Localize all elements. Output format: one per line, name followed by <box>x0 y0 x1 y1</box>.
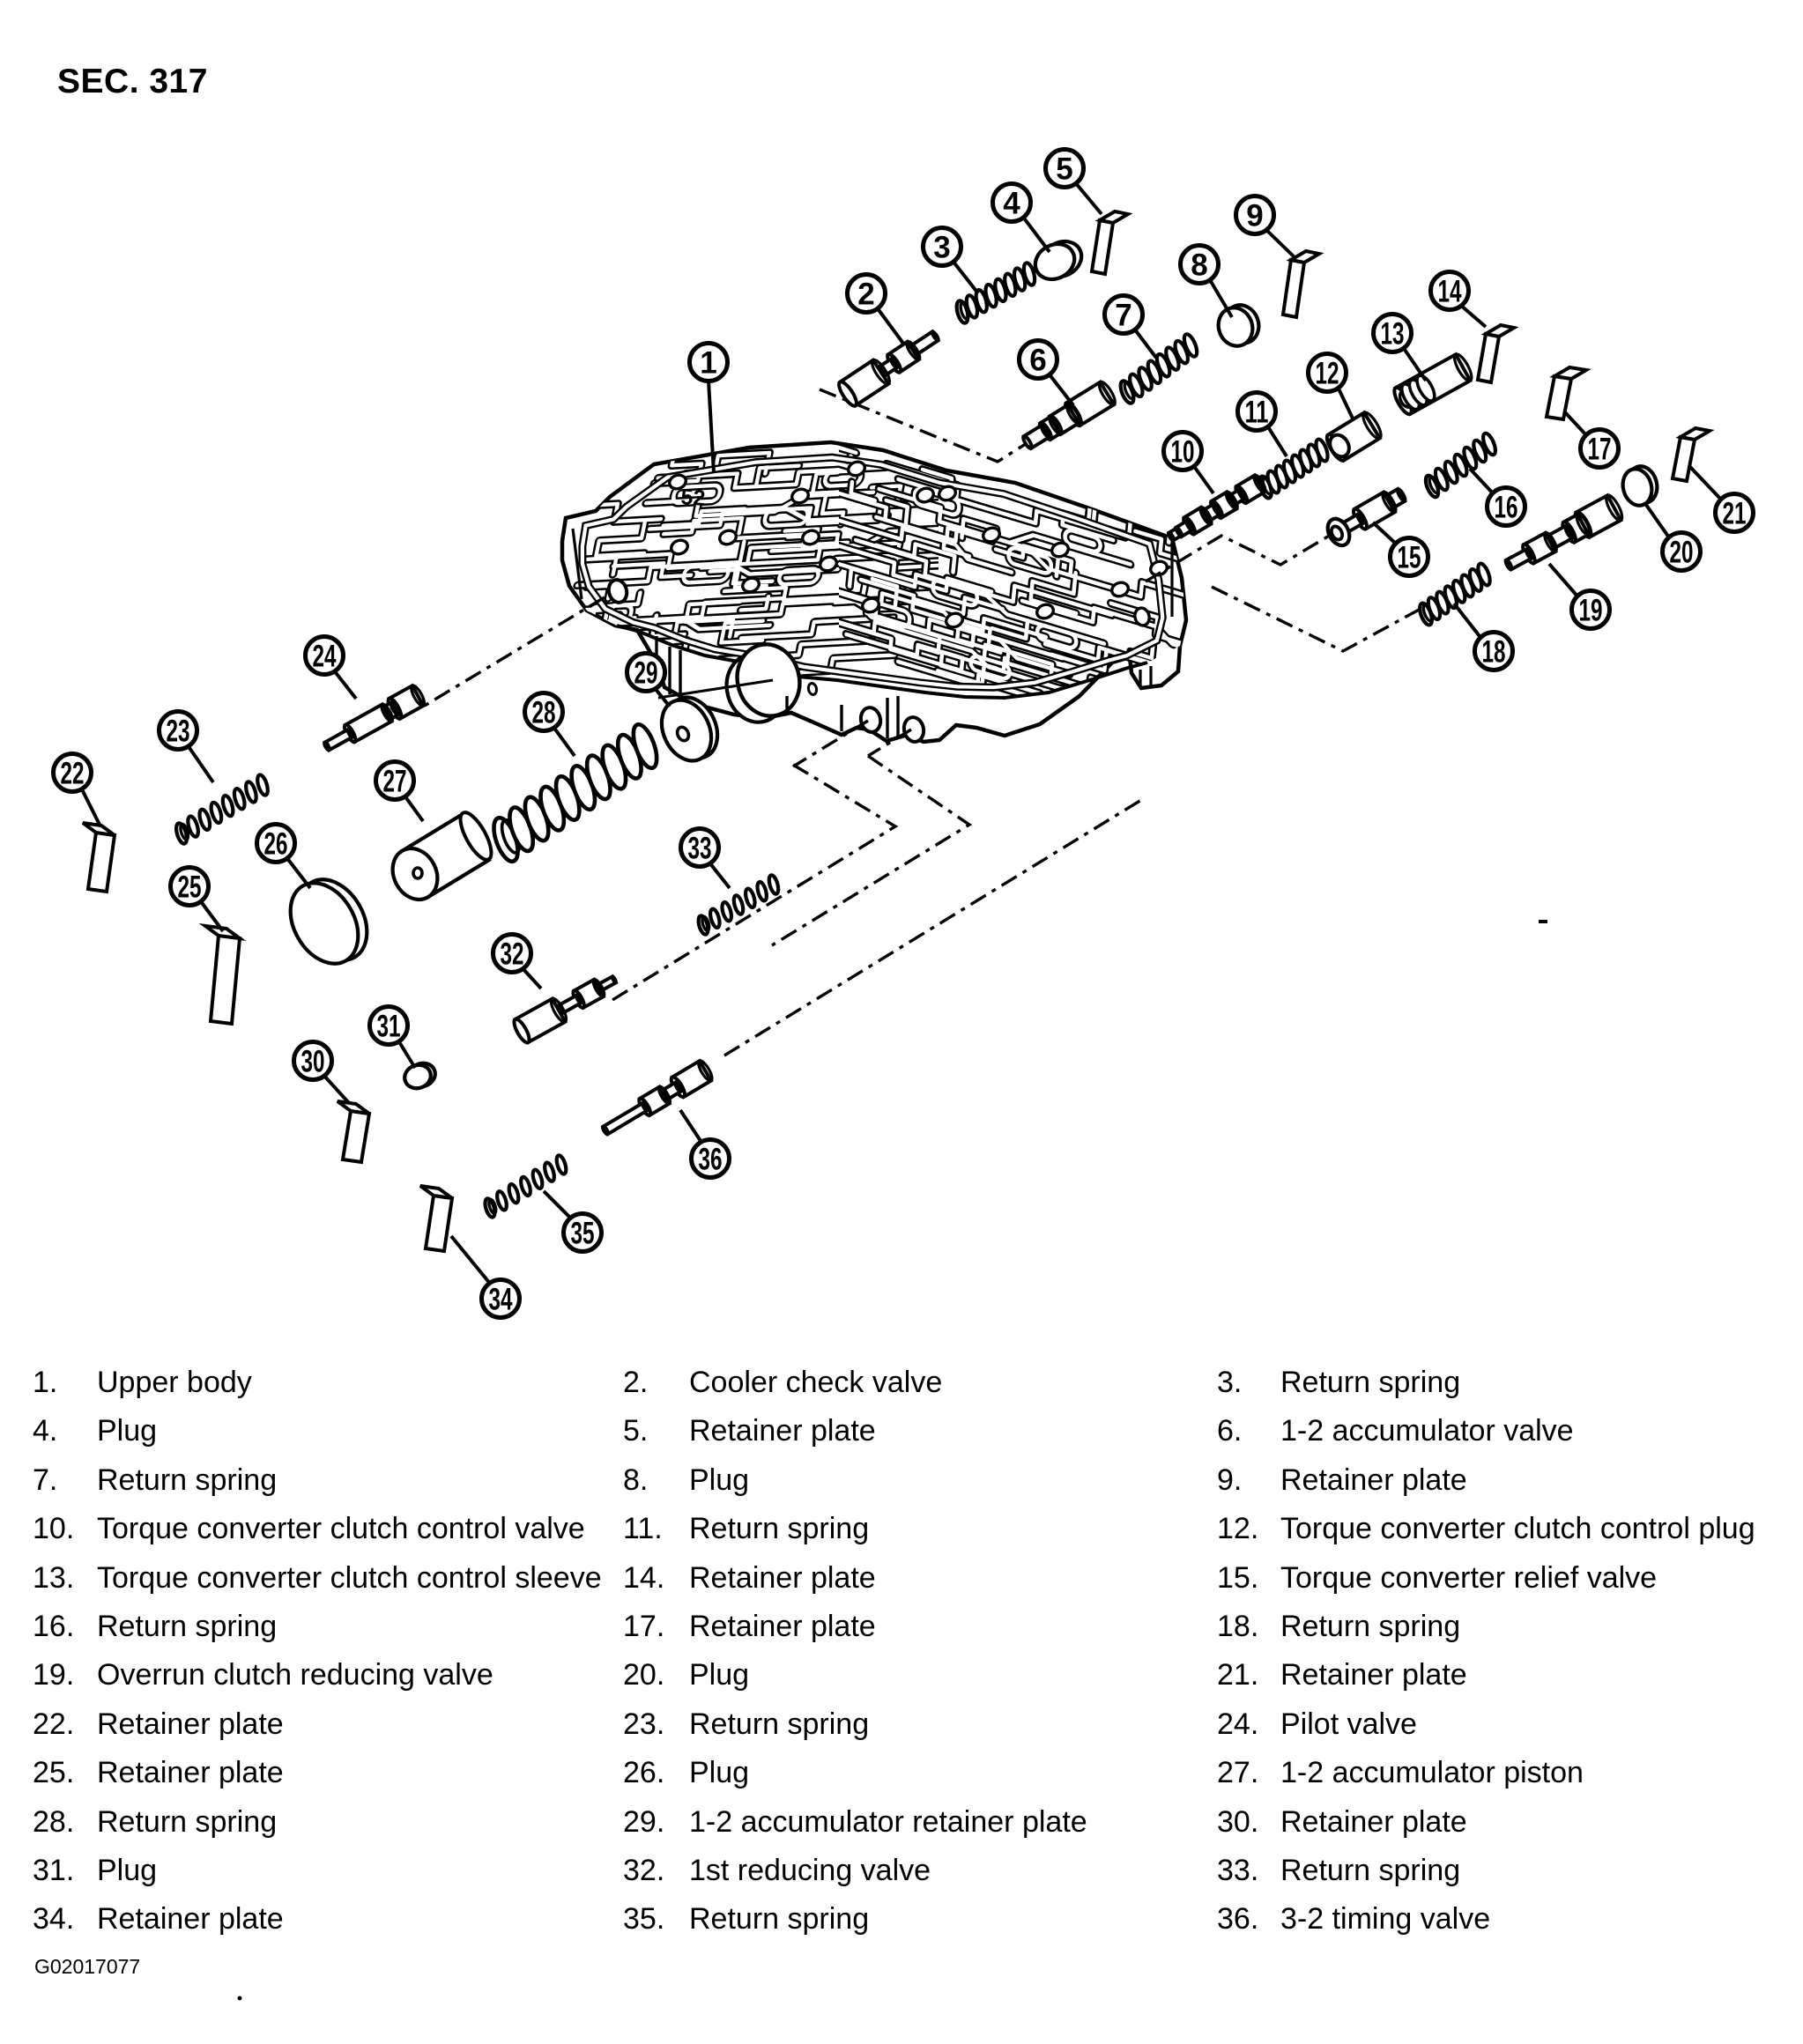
svg-text:12.: 12. <box>1217 1512 1258 1545</box>
svg-text:Upper body: Upper body <box>97 1366 252 1399</box>
svg-text:15.: 15. <box>1217 1561 1258 1595</box>
svg-text:Retainer plate: Retainer plate <box>1280 1805 1467 1839</box>
svg-text:Overrun clutch reducing valve: Overrun clutch reducing valve <box>97 1658 493 1692</box>
svg-text:33.: 33. <box>1217 1854 1258 1887</box>
svg-text:30.: 30. <box>1217 1805 1258 1839</box>
svg-text:Torque converter clutch contro: Torque converter clutch control valve <box>97 1512 585 1545</box>
svg-text:Retainer plate: Retainer plate <box>1280 1463 1467 1497</box>
svg-text:14: 14 <box>1438 275 1462 309</box>
svg-text:12: 12 <box>1316 357 1339 391</box>
svg-text:1.: 1. <box>33 1366 57 1399</box>
svg-text:28: 28 <box>532 696 556 730</box>
svg-text:Return spring: Return spring <box>97 1610 277 1643</box>
svg-text:25.: 25. <box>33 1756 74 1789</box>
svg-text:Return spring: Return spring <box>689 1512 869 1545</box>
svg-text:11: 11 <box>1245 396 1269 430</box>
svg-text:6.: 6. <box>1217 1414 1242 1448</box>
svg-text:32: 32 <box>501 937 524 972</box>
svg-text:20: 20 <box>1670 536 1694 570</box>
svg-text:22.: 22. <box>33 1707 74 1741</box>
svg-text:8: 8 <box>1191 248 1207 283</box>
svg-text:23.: 23. <box>623 1707 664 1741</box>
svg-text:Torque converter clutch contro: Torque converter clutch control sleeve <box>97 1561 602 1595</box>
svg-text:Plug: Plug <box>97 1414 157 1448</box>
svg-text:4: 4 <box>1003 187 1020 221</box>
svg-text:Plug: Plug <box>689 1463 749 1497</box>
svg-text:33: 33 <box>688 832 712 866</box>
svg-text:Return spring: Return spring <box>689 1707 869 1741</box>
svg-text:29: 29 <box>634 656 658 691</box>
svg-text:28.: 28. <box>33 1805 74 1839</box>
svg-text:5: 5 <box>1056 152 1072 187</box>
svg-text:25: 25 <box>178 870 202 905</box>
svg-text:35.: 35. <box>623 1902 664 1936</box>
svg-text:18: 18 <box>1482 635 1506 670</box>
svg-text:1-2 accumulator retainer plate: 1-2 accumulator retainer plate <box>689 1805 1087 1839</box>
svg-text:24.: 24. <box>1217 1707 1258 1741</box>
svg-text:3-2 timing valve: 3-2 timing valve <box>1280 1902 1490 1936</box>
svg-text:24: 24 <box>313 640 337 674</box>
svg-text:20.: 20. <box>623 1658 664 1692</box>
svg-text:1st reducing valve: 1st reducing valve <box>689 1854 931 1887</box>
svg-text:Retainer plate: Retainer plate <box>689 1561 876 1595</box>
svg-text:23: 23 <box>167 715 190 749</box>
svg-text:7.: 7. <box>33 1463 57 1497</box>
svg-text:6: 6 <box>1029 344 1046 378</box>
svg-text:26: 26 <box>264 827 288 862</box>
svg-text:4.: 4. <box>33 1414 57 1448</box>
svg-text:3.: 3. <box>1217 1366 1242 1399</box>
svg-text:26.: 26. <box>623 1756 664 1789</box>
svg-text:G02017077: G02017077 <box>34 1955 140 1978</box>
svg-text:Plug: Plug <box>689 1658 749 1692</box>
svg-text:Return spring: Return spring <box>1280 1366 1460 1399</box>
svg-text:3: 3 <box>933 231 950 265</box>
svg-text:21: 21 <box>1723 497 1747 531</box>
svg-text:2: 2 <box>857 278 874 312</box>
svg-text:5.: 5. <box>623 1414 648 1448</box>
svg-text:22: 22 <box>61 757 85 791</box>
svg-text:52: 52 <box>680 485 707 511</box>
svg-text:15: 15 <box>1398 541 1421 575</box>
svg-text:10: 10 <box>1171 435 1195 470</box>
svg-text:Retainer plate: Retainer plate <box>1280 1658 1467 1692</box>
svg-text:9: 9 <box>1246 199 1263 233</box>
svg-text:Torque converter clutch contro: Torque converter clutch control plug <box>1280 1512 1755 1545</box>
svg-text:Retainer plate: Retainer plate <box>97 1902 284 1936</box>
svg-text:10.: 10. <box>33 1512 74 1545</box>
svg-text:31: 31 <box>377 1010 401 1044</box>
svg-text:36: 36 <box>699 1143 723 1177</box>
svg-text:35: 35 <box>571 1217 595 1251</box>
svg-text:Cooler check valve: Cooler check valve <box>689 1366 942 1399</box>
svg-text:Retainer plate: Retainer plate <box>689 1610 876 1643</box>
svg-text:30: 30 <box>301 1045 325 1079</box>
svg-text:13.: 13. <box>33 1561 74 1595</box>
svg-text:Retainer plate: Retainer plate <box>97 1707 284 1741</box>
svg-text:Return spring: Return spring <box>97 1805 277 1839</box>
svg-text:32.: 32. <box>623 1854 664 1887</box>
svg-text:1-2 accumulator valve: 1-2 accumulator valve <box>1280 1414 1574 1448</box>
svg-text:Plug: Plug <box>97 1854 157 1887</box>
svg-text:13: 13 <box>1381 317 1405 352</box>
svg-text:11.: 11. <box>623 1512 663 1545</box>
svg-text:Plug: Plug <box>689 1756 749 1789</box>
svg-text:Return spring: Return spring <box>1280 1610 1460 1643</box>
svg-text:Return spring: Return spring <box>689 1902 869 1936</box>
svg-text:29.: 29. <box>623 1805 664 1839</box>
svg-text:Return spring: Return spring <box>1280 1854 1460 1887</box>
svg-text:31.: 31. <box>33 1854 74 1887</box>
svg-text:19: 19 <box>1579 594 1603 628</box>
svg-text:8.: 8. <box>623 1463 648 1497</box>
svg-text:7: 7 <box>1115 299 1132 333</box>
svg-text:16.: 16. <box>33 1610 74 1643</box>
svg-text:34.: 34. <box>33 1902 74 1936</box>
svg-text:2.: 2. <box>623 1366 648 1399</box>
svg-text:17.: 17. <box>623 1610 664 1643</box>
svg-text:SEC. 317: SEC. 317 <box>57 63 208 100</box>
svg-text:Retainer plate: Retainer plate <box>97 1756 284 1789</box>
svg-text:9.: 9. <box>1217 1463 1242 1497</box>
svg-text:18.: 18. <box>1217 1610 1258 1643</box>
svg-text:Return spring: Return spring <box>97 1463 277 1497</box>
svg-text:14.: 14. <box>623 1561 664 1595</box>
svg-text:27: 27 <box>383 765 407 799</box>
svg-text:Retainer plate: Retainer plate <box>689 1414 876 1448</box>
svg-text:17: 17 <box>1588 433 1612 467</box>
svg-text:34: 34 <box>489 1283 513 1317</box>
svg-text:27.: 27. <box>1217 1756 1258 1789</box>
svg-text:21.: 21. <box>1217 1658 1258 1692</box>
svg-text:Torque converter relief valve: Torque converter relief valve <box>1280 1561 1657 1595</box>
svg-text:16: 16 <box>1495 491 1518 525</box>
svg-text:36.: 36. <box>1217 1902 1258 1936</box>
svg-text:1: 1 <box>700 346 716 381</box>
svg-text:Pilot valve: Pilot valve <box>1280 1707 1417 1741</box>
svg-text:1-2 accumulator piston: 1-2 accumulator piston <box>1280 1756 1584 1789</box>
svg-text:19.: 19. <box>33 1658 74 1692</box>
